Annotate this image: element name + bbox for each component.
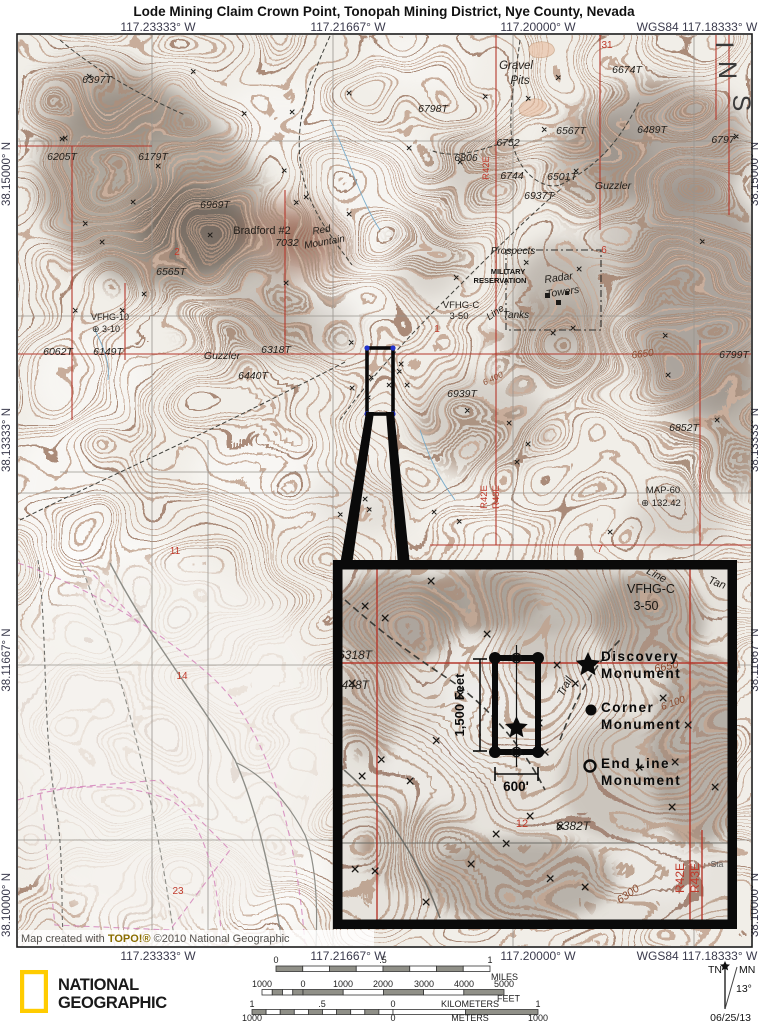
svg-text:6939T: 6939T	[447, 388, 478, 400]
svg-text:6205T: 6205T	[47, 151, 78, 163]
svg-text:38.11667° N: 38.11667° N	[1, 628, 13, 691]
svg-text:117.23333° W: 117.23333° W	[120, 949, 196, 963]
svg-text:38.13333° N: 38.13333° N	[1, 408, 13, 472]
svg-text:⊕ 3-10: ⊕ 3-10	[92, 324, 120, 334]
svg-text:R42E: R42E	[479, 485, 490, 509]
svg-text:6752: 6752	[496, 137, 520, 149]
svg-text:117.20000° W: 117.20000° W	[500, 20, 576, 34]
svg-text:12: 12	[516, 818, 528, 830]
svg-text:1000: 1000	[333, 979, 353, 989]
svg-text:6149T: 6149T	[93, 346, 124, 358]
svg-text:6397T: 6397T	[82, 74, 113, 86]
svg-text:117.21667° W: 117.21667° W	[310, 949, 386, 963]
svg-text:6937T: 6937T	[524, 190, 555, 202]
svg-text:6179T: 6179T	[138, 151, 169, 163]
svg-text:6: 6	[601, 245, 607, 256]
svg-text:End Line: End Line	[601, 756, 670, 771]
svg-text:1: 1	[535, 999, 540, 1009]
svg-text:2000: 2000	[373, 979, 393, 989]
svg-text:6382T: 6382T	[556, 819, 592, 833]
svg-text:6567T: 6567T	[556, 125, 587, 137]
svg-text:1000: 1000	[252, 979, 272, 989]
svg-text:7032: 7032	[275, 237, 299, 249]
svg-text:31: 31	[601, 40, 613, 51]
svg-text:.5: .5	[318, 999, 326, 1009]
svg-text:6799T: 6799T	[719, 349, 750, 361]
svg-text:1000: 1000	[242, 1013, 262, 1023]
svg-text:1: 1	[249, 999, 254, 1009]
svg-text:R42E: R42E	[481, 156, 492, 180]
svg-text:VFHG-10: VFHG-10	[91, 312, 129, 322]
svg-text:11: 11	[170, 546, 181, 557]
svg-text:0: 0	[390, 1013, 395, 1023]
svg-text:R43E: R43E	[491, 485, 502, 509]
svg-text:14: 14	[176, 671, 188, 682]
svg-text:3000: 3000	[414, 979, 434, 989]
svg-text:NATIONAL: NATIONAL	[58, 976, 139, 994]
svg-text:RESERVATION: RESERVATION	[474, 276, 527, 285]
svg-text:117.20000° W: 117.20000° W	[500, 949, 576, 963]
svg-text:0: 0	[300, 979, 305, 989]
svg-text:MN: MN	[739, 964, 755, 976]
svg-text:6489T: 6489T	[637, 124, 668, 136]
svg-text:6798T: 6798T	[418, 103, 449, 115]
svg-text:Map created with TOPO!® ©2010: Map created with TOPO!® ©2010 National G…	[21, 933, 290, 945]
svg-text:117.21667° W: 117.21667° W	[310, 20, 386, 34]
svg-text:38.10000° N: 38.10000° N	[1, 873, 13, 937]
svg-text:6969T: 6969T	[200, 199, 231, 211]
svg-text:1: 1	[487, 955, 492, 965]
svg-text:WGS84 117.18333° W: WGS84 117.18333° W	[637, 949, 758, 963]
svg-text:Pits: Pits	[510, 75, 529, 87]
svg-text:Lode Mining Claim Crown Point,: Lode Mining Claim Crown Point, Tonopah M…	[133, 4, 635, 19]
svg-text:.5: .5	[379, 955, 387, 965]
svg-text:R42E: R42E	[673, 863, 687, 893]
svg-text:Gravel: Gravel	[499, 60, 533, 72]
svg-text:METERS: METERS	[451, 1013, 489, 1023]
svg-text:7: 7	[597, 544, 603, 555]
svg-text:117.23333° W: 117.23333° W	[120, 20, 196, 34]
svg-text:I: I	[710, 42, 738, 49]
svg-text:FEET: FEET	[497, 994, 521, 1004]
svg-text:6852T: 6852T	[669, 422, 700, 434]
svg-text:6440T: 6440T	[238, 370, 269, 382]
svg-text:38.15000° N: 38.15000° N	[1, 142, 13, 206]
svg-text:VFHG-C: VFHG-C	[627, 582, 675, 596]
svg-text:5000: 5000	[494, 979, 514, 989]
svg-text:⊕ 132.42: ⊕ 132.42	[641, 498, 681, 509]
svg-text:3-50: 3-50	[449, 311, 468, 322]
svg-text:4000: 4000	[454, 979, 474, 989]
svg-text:Bradford #2: Bradford #2	[233, 225, 290, 237]
svg-text:Guzzler: Guzzler	[204, 350, 241, 362]
svg-text:0: 0	[390, 999, 395, 1009]
svg-text:Monument: Monument	[601, 666, 681, 681]
svg-text:2: 2	[174, 247, 180, 258]
svg-text:6318T: 6318T	[261, 344, 292, 356]
svg-text:1,500 Feet: 1,500 Feet	[452, 673, 467, 737]
svg-text:Monument: Monument	[601, 773, 681, 788]
svg-text:23: 23	[172, 886, 184, 897]
svg-text:GEOGRAPHIC: GEOGRAPHIC	[58, 994, 167, 1012]
svg-text:6318T: 6318T	[338, 648, 374, 662]
svg-text:KILOMETERS: KILOMETERS	[441, 999, 499, 1009]
svg-text:3-50: 3-50	[633, 599, 658, 613]
svg-text:TN: TN	[708, 964, 722, 976]
svg-text:Guzzler: Guzzler	[595, 180, 632, 192]
svg-text:R43E: R43E	[688, 863, 702, 893]
svg-text:WGS84 117.18333° W: WGS84 117.18333° W	[637, 20, 758, 34]
svg-text:Monument: Monument	[601, 717, 681, 732]
svg-text:Tanks: Tanks	[503, 310, 529, 321]
svg-text:6806: 6806	[454, 152, 478, 164]
svg-text:6501T: 6501T	[547, 171, 578, 183]
svg-text:MAP-60: MAP-60	[646, 485, 680, 496]
svg-text:S: S	[727, 95, 755, 112]
svg-text:Sta: Sta	[711, 859, 724, 869]
svg-text:6744: 6744	[500, 170, 524, 182]
svg-text:06/25/13: 06/25/13	[710, 1012, 751, 1024]
svg-text:1: 1	[434, 324, 440, 335]
svg-text:6797: 6797	[711, 134, 736, 146]
svg-text:6062T: 6062T	[43, 346, 74, 358]
svg-text:13°: 13°	[736, 983, 752, 995]
svg-text:6674T: 6674T	[612, 64, 643, 76]
svg-text:Prospects: Prospects	[491, 246, 535, 257]
svg-text:VFHG-C: VFHG-C	[443, 300, 480, 311]
svg-text:MILITARY: MILITARY	[491, 267, 526, 276]
svg-text:0: 0	[273, 955, 278, 965]
svg-text:1000: 1000	[528, 1013, 548, 1023]
svg-text:600': 600'	[503, 779, 529, 794]
svg-text:N: N	[713, 61, 741, 79]
svg-text:Discovery: Discovery	[601, 649, 679, 664]
svg-text:Corner: Corner	[601, 700, 654, 715]
svg-text:6565T: 6565T	[156, 266, 187, 278]
